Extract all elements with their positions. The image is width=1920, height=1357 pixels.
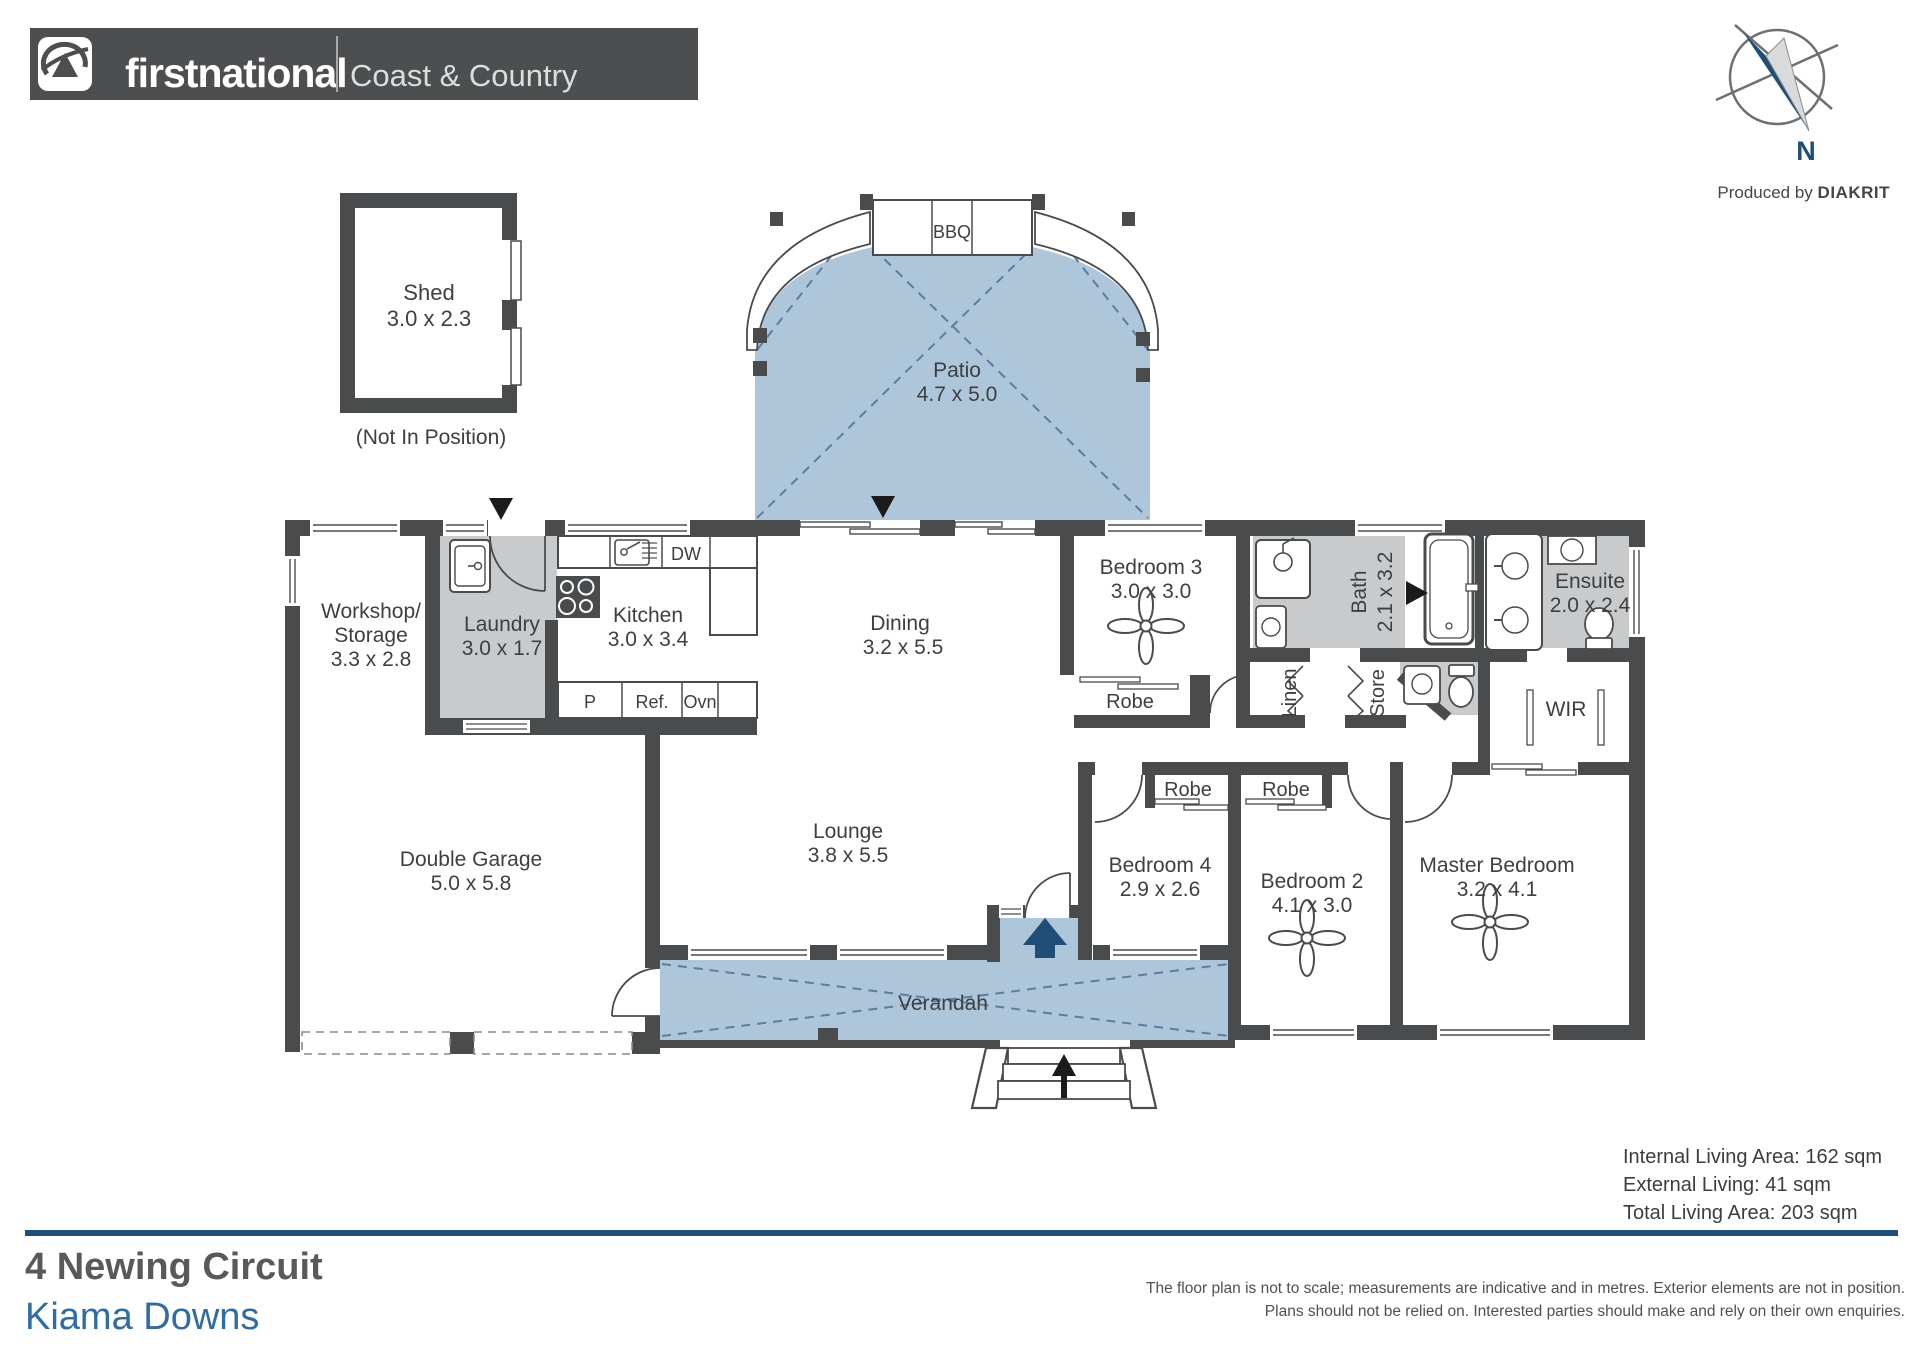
bedroom3-robe-label: Robe: [1106, 691, 1154, 713]
compass: N: [1716, 25, 1838, 166]
floorplan-page: firstnational REAL ESTATE Coast & Countr…: [0, 0, 1920, 1357]
wir-rail-icon: [1598, 690, 1604, 745]
robes-closets: [1080, 666, 1604, 810]
wir-label: WIR: [1546, 698, 1587, 721]
workshop-label-2: Storage: [334, 624, 408, 647]
bedroom2-label: Bedroom 2: [1261, 870, 1364, 893]
workshop-dims: 3.3 x 2.8: [331, 648, 412, 671]
bath-basin-icon: [1256, 606, 1286, 648]
store-label: Store: [1367, 669, 1389, 717]
ensuite-basin-icon: [1548, 536, 1596, 564]
dining-dims: 3.2 x 5.5: [863, 636, 944, 659]
ensuite-dims: 2.0 x 2.4: [1550, 594, 1631, 617]
laundry-sink-icon: [450, 540, 490, 592]
total-living-area: Total Living Area: 203 sqm: [1623, 1199, 1882, 1227]
divider-rule: [25, 1230, 1898, 1236]
lounge-dims: 3.8 x 5.5: [808, 844, 889, 867]
bath-label: Bath: [1348, 570, 1371, 613]
address-suburb: Kiama Downs: [25, 1296, 259, 1339]
shed-note: (Not In Position): [356, 426, 507, 449]
patio: BBQ Patio 4.7 x 5.0: [747, 194, 1158, 520]
wc-toilet-icon: [1449, 665, 1474, 707]
external-living-area: External Living: 41 sqm: [1623, 1171, 1882, 1199]
laundry-label: Laundry: [464, 613, 540, 636]
shed-dims: 3.0 x 2.3: [387, 306, 471, 331]
front-steps: [972, 1048, 1156, 1108]
ensuite-label: Ensuite: [1555, 570, 1625, 593]
dishwasher-label: DW: [671, 544, 701, 564]
shed: Shed 3.0 x 2.3 (Not In Position): [340, 193, 521, 449]
living-areas-summary: Internal Living Area: 162 sqm External L…: [1623, 1143, 1882, 1227]
workshop-label-1: Workshop/: [321, 600, 421, 623]
laundry-dims: 3.0 x 1.7: [462, 637, 543, 660]
lounge-label: Lounge: [813, 820, 883, 843]
shed-label: Shed: [403, 280, 454, 305]
fridge-label: Ref.: [635, 692, 668, 712]
garage-label: Double Garage: [400, 848, 542, 871]
bath-dims: 2.1 x 3.2: [1374, 552, 1397, 633]
bedroom2-dims: 4.1 x 3.0: [1272, 894, 1353, 917]
verandah-label: Verandah: [898, 992, 988, 1015]
disclaimer-line-2: Plans should not be relied on. Intereste…: [1146, 1300, 1905, 1323]
patio-dims: 4.7 x 5.0: [917, 383, 998, 406]
oven-label: Ovn: [683, 692, 716, 712]
bedroom2-robe-label: Robe: [1262, 779, 1310, 801]
disclaimer: The floor plan is not to scale; measurem…: [1146, 1277, 1905, 1323]
pantry-label: P: [584, 692, 596, 712]
wir-rail-icon: [1527, 690, 1533, 745]
cooktop-icon: [556, 576, 600, 618]
disclaimer-line-1: The floor plan is not to scale; measurem…: [1146, 1277, 1905, 1300]
garage-dims: 5.0 x 5.8: [431, 872, 512, 895]
wc-basin-icon: [1404, 666, 1440, 704]
compass-north-label: N: [1796, 136, 1816, 166]
shower-icon: [1256, 538, 1310, 598]
bedroom3-label: Bedroom 3: [1100, 556, 1203, 579]
bathtub-icon: [1425, 534, 1478, 644]
bedroom4-dims: 2.9 x 2.6: [1120, 878, 1201, 901]
master-dims: 3.2 x 4.1: [1457, 878, 1538, 901]
kitchen-fixtures: [556, 536, 757, 718]
bbq-label: BBQ: [933, 222, 971, 242]
kitchen-label: Kitchen: [613, 604, 683, 627]
bedroom3-dims: 3.0 x 3.0: [1111, 580, 1192, 603]
bbq-bench: BBQ: [862, 200, 1043, 255]
internal-living-area: Internal Living Area: 162 sqm: [1623, 1143, 1882, 1171]
bedroom4-robe-label: Robe: [1164, 779, 1212, 801]
linen-label: Linen: [1279, 669, 1301, 718]
patio-label: Patio: [933, 359, 981, 382]
master-label: Master Bedroom: [1419, 854, 1574, 877]
kitchen-dims: 3.0 x 3.4: [608, 628, 689, 651]
double-vanity-icon: [1486, 534, 1542, 650]
bedroom4-label: Bedroom 4: [1109, 854, 1212, 877]
dining-label: Dining: [870, 612, 930, 635]
address-street: 4 Newing Circuit: [25, 1246, 323, 1289]
laundry-entry-arrow: [489, 498, 513, 520]
